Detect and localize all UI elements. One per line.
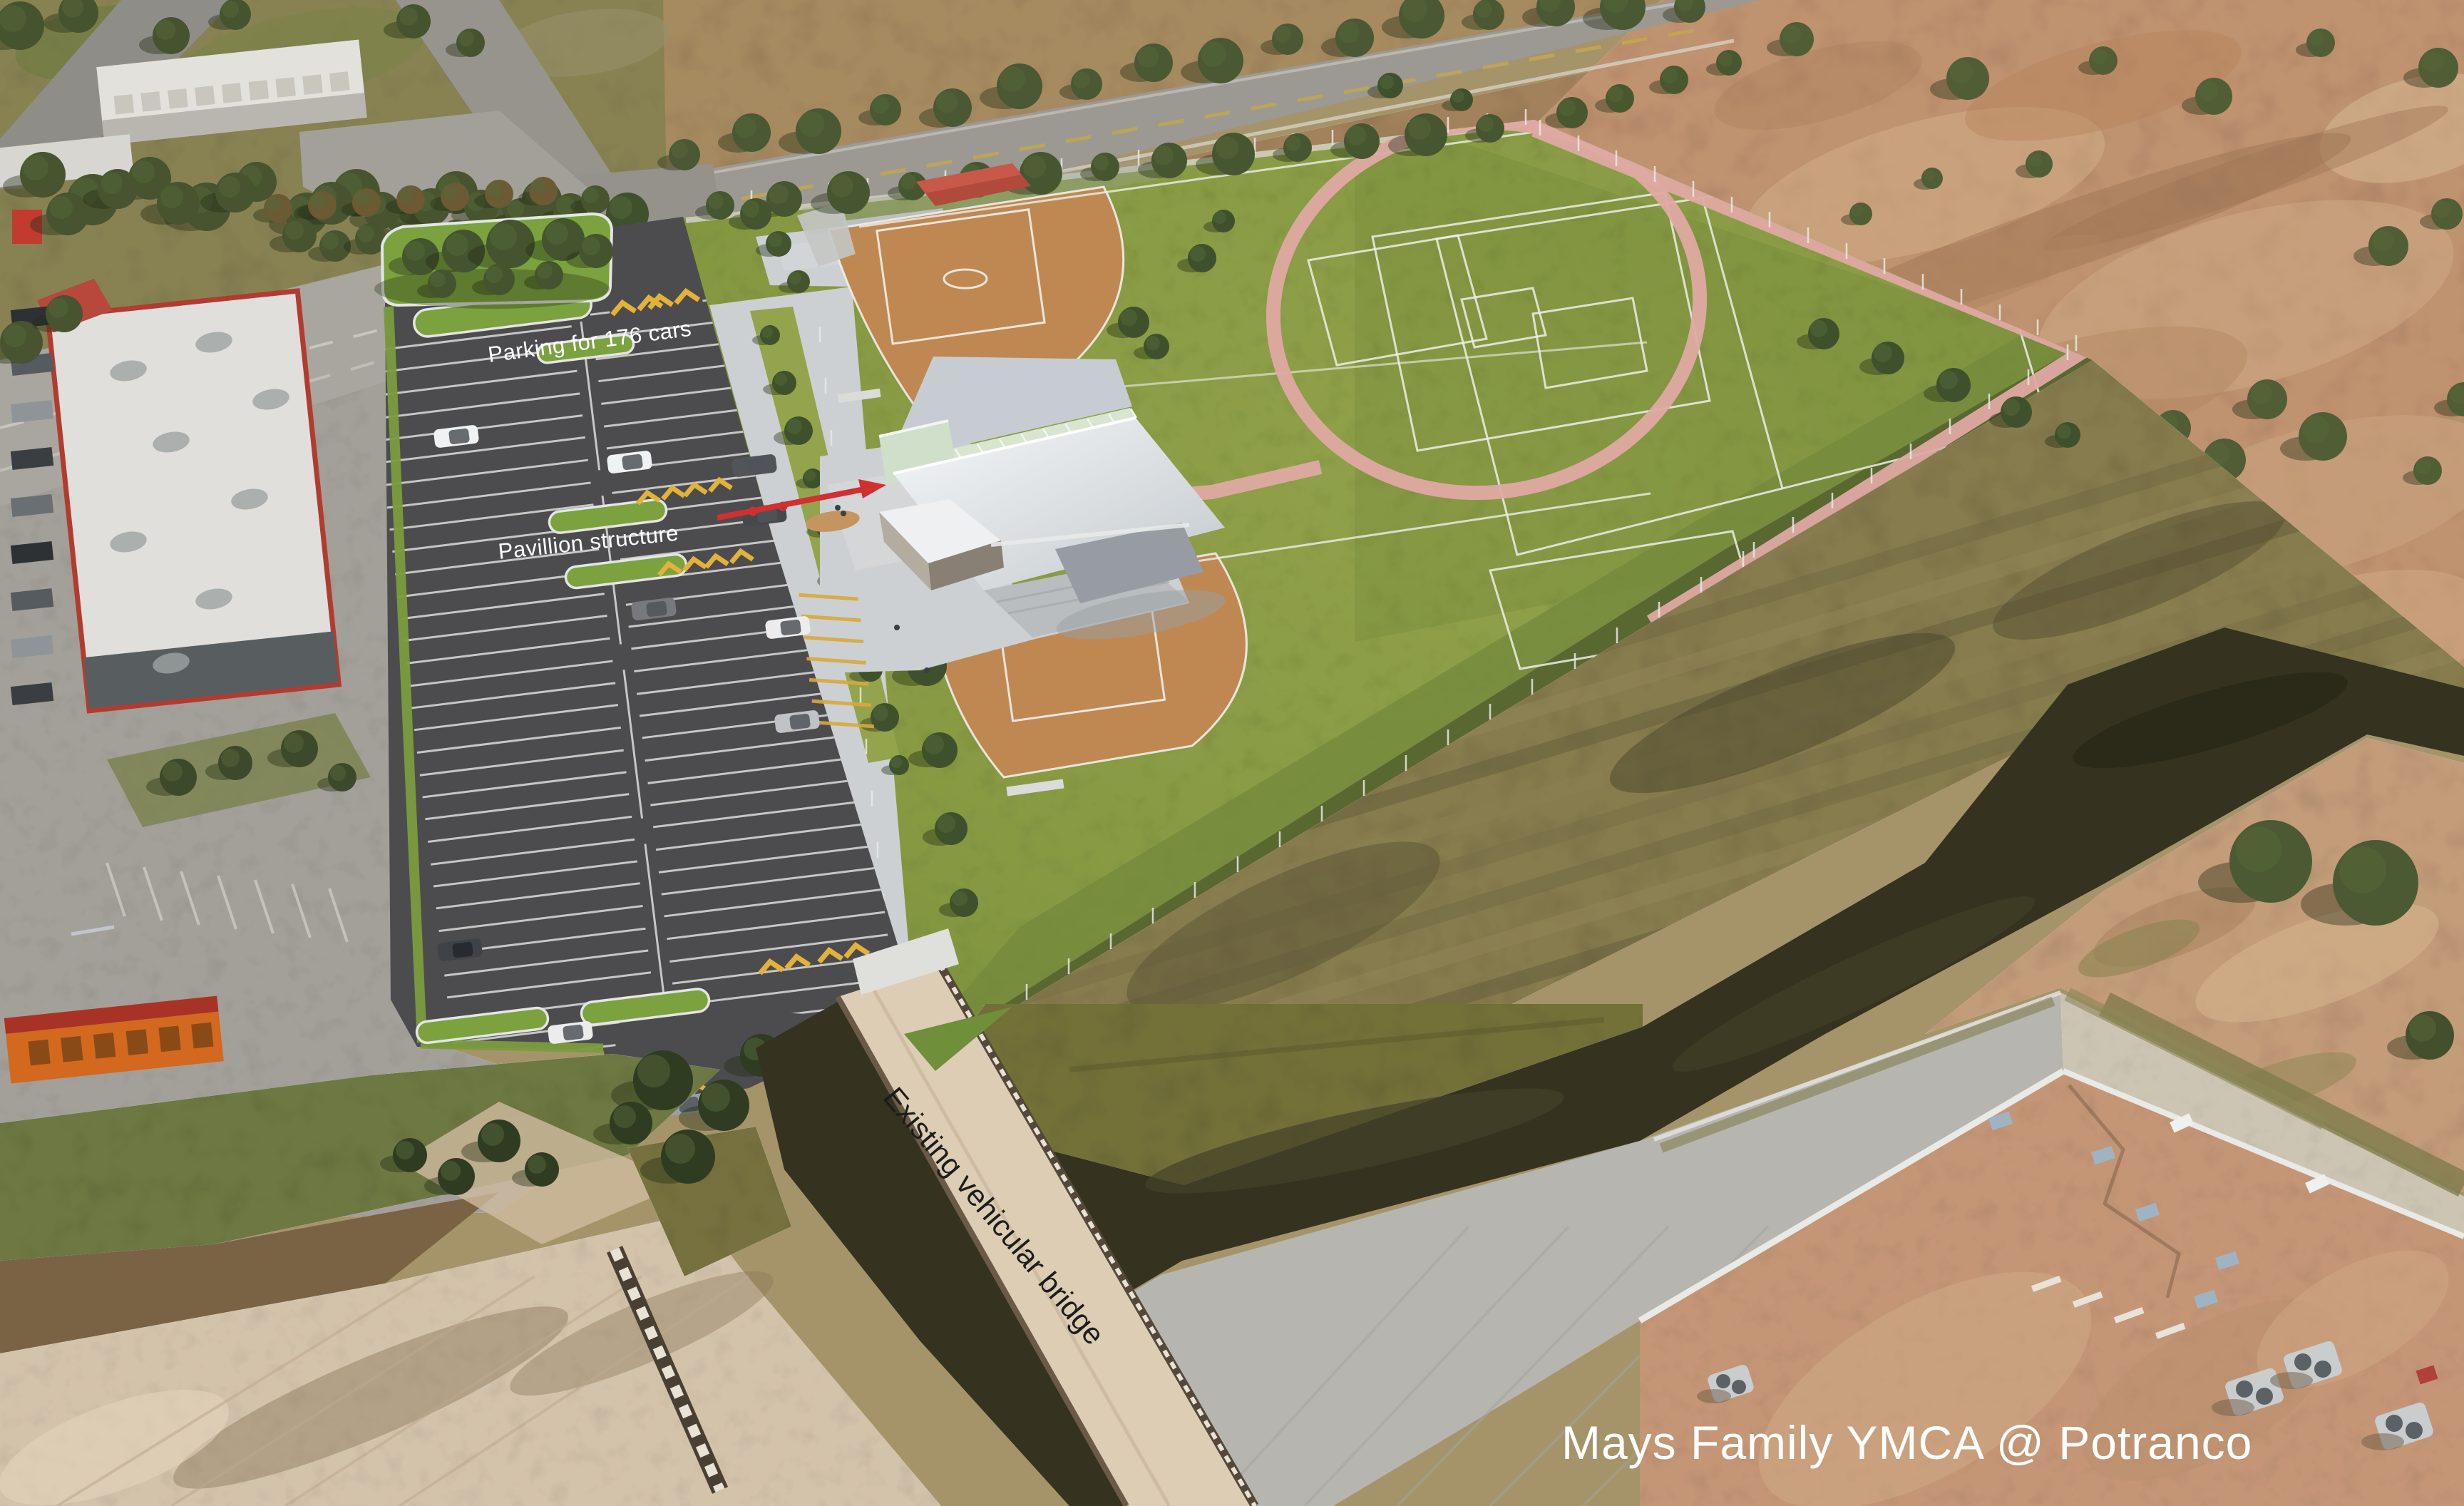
svg-text:Mays Family YMCA @ Potranco: Mays Family YMCA @ Potranco: [1561, 1416, 2252, 1469]
